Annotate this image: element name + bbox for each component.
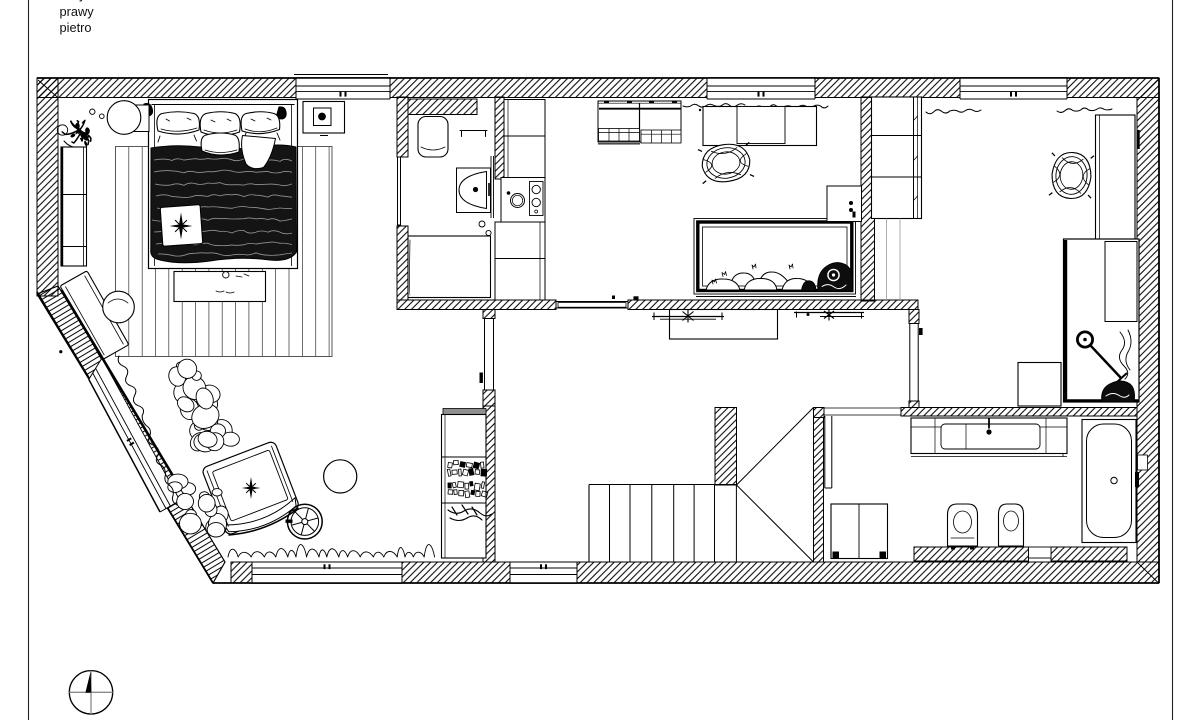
svg-text:prawy: prawy — [60, 4, 95, 19]
svg-text:y: y — [79, 0, 86, 2]
svg-text:pietro: pietro — [60, 20, 92, 35]
